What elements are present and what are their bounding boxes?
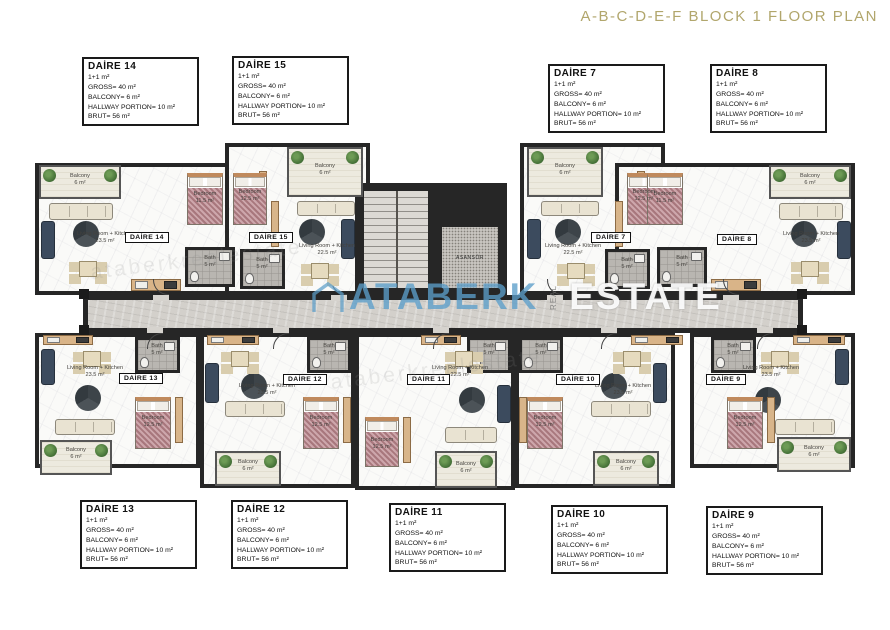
spec-balcony: BALCONY= 6 m² [557, 541, 662, 551]
armchair [653, 363, 667, 403]
info-box-daire-15: DAİRE 15 1+1 m² GROSS= 40 m² BALCONY= 6 … [232, 56, 349, 125]
info-box-title: DAİRE 7 [554, 68, 659, 79]
dining-table [567, 263, 585, 279]
room-label-bath: Bath 5 m² [535, 343, 547, 358]
room-label-bath: Bath 5 m² [204, 255, 216, 270]
wardrobe [403, 417, 411, 463]
spec-hallway: HALLWAY PORTION= 10 m² [395, 549, 500, 559]
wardrobe [767, 397, 775, 443]
spec-hallway: HALLWAY PORTION= 10 m² [716, 110, 821, 120]
spec-type: 1+1 m² [86, 516, 191, 526]
spec-gross: GROSS= 40 m² [712, 532, 817, 542]
room-label-living: Living Room + Kitchen 23.5 m² [783, 231, 839, 246]
sofa [225, 401, 285, 417]
sofa [445, 427, 497, 443]
column [797, 325, 807, 335]
spec-balcony: BALCONY= 6 m² [88, 93, 193, 103]
unit-chip-9: DAİRE 9 [706, 374, 746, 385]
spec-brut: BRUT= 56 m² [554, 119, 659, 129]
armchair [41, 221, 55, 259]
column [797, 289, 807, 299]
info-box-title: DAİRE 13 [86, 504, 191, 515]
spec-brut: BRUT= 56 m² [86, 555, 191, 565]
elevator-label: ASANSÖR [456, 255, 484, 261]
rug [75, 385, 101, 411]
spec-balcony: BALCONY= 6 m² [238, 92, 343, 102]
unit-chip-10: DAİRE 10 [556, 374, 600, 385]
info-box-daire-10: DAİRE 10 1+1 m² GROSS= 40 m² BALCONY= 6 … [551, 505, 668, 574]
spec-brut: BRUT= 56 m² [237, 555, 342, 565]
info-box-title: DAİRE 10 [557, 509, 662, 520]
spec-hallway: HALLWAY PORTION= 10 m² [86, 546, 191, 556]
floor-plan: ASANSÖR Balcony 6 m² Living Room + Kitch… [35, 135, 855, 495]
armchair [527, 219, 541, 259]
room-label-bath: Bath 5 m² [676, 255, 688, 270]
spec-brut: BRUT= 56 m² [712, 561, 817, 571]
elevator: ASANSÖR [438, 223, 502, 292]
room-label-balcony: Balcony 6 m² [456, 461, 476, 476]
room-label-bath: Bath 5 m² [483, 343, 495, 358]
unit-chip-12: DAİRE 12 [283, 374, 327, 385]
room-label-living: Living Room + Kitchen 23.5 m² [239, 383, 295, 398]
room-label-bath: Bath 5 m² [323, 343, 335, 358]
wardrobe [519, 397, 527, 443]
spec-type: 1+1 m² [238, 72, 343, 82]
unit-chip-7: DAİRE 7 [591, 232, 631, 243]
room-label-balcony: Balcony 6 m² [800, 173, 820, 188]
spec-gross: GROSS= 40 m² [395, 529, 500, 539]
armchair [835, 349, 849, 385]
info-box-daire-8: DAİRE 8 1+1 m² GROSS= 40 m² BALCONY= 6 m… [710, 64, 827, 133]
spec-gross: GROSS= 40 m² [716, 90, 821, 100]
info-box-daire-9: DAİRE 9 1+1 m² GROSS= 40 m² BALCONY= 6 m… [706, 506, 823, 575]
spec-hallway: HALLWAY PORTION= 10 m² [554, 110, 659, 120]
door-opening [547, 295, 563, 301]
spec-type: 1+1 m² [554, 80, 659, 90]
kitchen-counter [43, 335, 93, 345]
info-box-daire-11: DAİRE 11 1+1 m² GROSS= 40 m² BALCONY= 6 … [389, 503, 506, 572]
spec-gross: GROSS= 40 m² [88, 83, 193, 93]
room-label-balcony: Balcony 6 m² [66, 447, 86, 462]
info-box-daire-14: DAİRE 14 1+1 m² GROSS= 40 m² BALCONY= 6 … [82, 57, 199, 126]
door-opening [723, 295, 739, 301]
spec-hallway: HALLWAY PORTION= 10 m² [238, 102, 343, 112]
sofa [49, 203, 113, 220]
room-label-bedroom: Bedroom 11.5 m² [194, 191, 217, 206]
spec-brut: BRUT= 56 m² [716, 119, 821, 129]
room-label-bedroom: Bedroom 12.5 m² [734, 415, 757, 430]
armchair [497, 385, 511, 423]
wardrobe [343, 397, 351, 443]
spec-gross: GROSS= 40 m² [238, 82, 343, 92]
page-title: A-B-C-D-E-F BLOCK 1 FLOOR PLAN [580, 8, 878, 25]
stairs [360, 187, 432, 292]
room-label-balcony: Balcony 6 m² [238, 459, 258, 474]
kitchen-counter [793, 335, 845, 345]
sofa [779, 203, 843, 220]
info-box-title: DAİRE 15 [238, 60, 343, 71]
spec-type: 1+1 m² [557, 521, 662, 531]
spec-brut: BRUT= 56 m² [395, 558, 500, 568]
room-label-living: Living Room + Kitchen 23.5 m² [67, 365, 123, 380]
spec-gross: GROSS= 40 m² [554, 90, 659, 100]
kitchen-counter [631, 335, 683, 345]
spec-gross: GROSS= 40 m² [86, 526, 191, 536]
unit-chip-15: DAİRE 15 [249, 232, 293, 243]
unit-chip-11: DAİRE 11 [407, 374, 450, 385]
spec-balcony: BALCONY= 6 m² [716, 100, 821, 110]
dining-table [801, 261, 819, 277]
door-opening [331, 295, 347, 301]
room-label-bedroom: Bedroom 12.5 m² [534, 415, 557, 430]
info-box-title: DAİRE 11 [395, 507, 500, 518]
room-label-bedroom: Bedroom 12.5 m² [142, 415, 165, 430]
armchair [41, 349, 55, 385]
room-label-balcony: Balcony 6 m² [70, 173, 90, 188]
info-box-daire-7: DAİRE 7 1+1 m² GROSS= 40 m² BALCONY= 6 m… [548, 64, 665, 133]
spec-balcony: BALCONY= 6 m² [395, 539, 500, 549]
spec-brut: BRUT= 56 m² [88, 112, 193, 122]
column [79, 325, 89, 335]
dining-table [623, 351, 641, 367]
dining-table [311, 263, 329, 279]
room-label-balcony: Balcony 6 m² [804, 445, 824, 460]
unit-chip-8: DAİRE 8 [717, 234, 757, 245]
spec-hallway: HALLWAY PORTION= 10 m² [557, 551, 662, 561]
spec-type: 1+1 m² [716, 80, 821, 90]
rug [299, 219, 325, 245]
room-label-bedroom: Bedroom 12.5 m² [239, 189, 262, 204]
rug [555, 219, 581, 245]
sofa [297, 201, 355, 216]
spec-balcony: BALCONY= 6 m² [86, 536, 191, 546]
info-box-daire-13: DAİRE 13 1+1 m² GROSS= 40 m² BALCONY= 6 … [80, 500, 197, 569]
room-label-living: Living Room + Kitchen 23.5 m² [595, 383, 651, 398]
armchair [837, 221, 851, 259]
unit-chip-14: DAİRE 14 [125, 232, 169, 243]
spec-type: 1+1 m² [395, 519, 500, 529]
room-label-living: Living Room + Kitchen 23.5 m² [743, 365, 799, 380]
unit-chip-13: DAİRE 13 [119, 373, 163, 384]
room-label-bath: Bath 5 m² [727, 343, 739, 358]
rug [459, 387, 485, 413]
room-label-living: Living Room + Kitchen 22.5 m² [545, 243, 601, 258]
spec-hallway: HALLWAY PORTION= 10 m² [88, 103, 193, 113]
spec-type: 1+1 m² [712, 522, 817, 532]
info-box-title: DAİRE 8 [716, 68, 821, 79]
room-label-bath: Bath 5 m² [151, 343, 163, 358]
dining-table [231, 351, 249, 367]
spec-type: 1+1 m² [88, 73, 193, 83]
kitchen-counter [207, 335, 259, 345]
room-label-bedroom: Bedroom 12.5 m² [310, 415, 333, 430]
room-label-bath: Bath 5 m² [256, 257, 268, 272]
dining-table [79, 261, 97, 277]
info-box-title: DAİRE 9 [712, 510, 817, 521]
spec-balcony: BALCONY= 6 m² [712, 542, 817, 552]
room-label-bedroom: Bedroom 12.5 m² [371, 437, 394, 452]
spec-balcony: BALCONY= 6 m² [237, 536, 342, 546]
spec-brut: BRUT= 56 m² [557, 560, 662, 570]
room-label-bath: Bath 5 m² [621, 257, 633, 272]
sofa [591, 401, 651, 417]
spec-gross: GROSS= 40 m² [237, 526, 342, 536]
wardrobe [175, 397, 183, 443]
room-label-bedroom: Bedroom 12.5 m² [633, 189, 656, 204]
column [79, 289, 89, 299]
spec-gross: GROSS= 40 m² [557, 531, 662, 541]
room-label-living: Living Room + Kitchen 22.5 m² [299, 243, 355, 258]
armchair [205, 363, 219, 403]
spec-hallway: HALLWAY PORTION= 10 m² [237, 546, 342, 556]
room-label-balcony: Balcony 6 m² [315, 163, 335, 178]
room-label-balcony: Balcony 6 m² [555, 163, 575, 178]
info-box-title: DAİRE 12 [237, 504, 342, 515]
door-opening [153, 295, 169, 301]
spec-brut: BRUT= 56 m² [238, 111, 343, 121]
room-label-balcony: Balcony 6 m² [616, 459, 636, 474]
spec-balcony: BALCONY= 6 m² [554, 100, 659, 110]
sofa [541, 201, 599, 216]
info-box-daire-12: DAİRE 12 1+1 m² GROSS= 40 m² BALCONY= 6 … [231, 500, 348, 569]
spec-hallway: HALLWAY PORTION= 10 m² [712, 552, 817, 562]
info-box-title: DAİRE 14 [88, 61, 193, 72]
spec-type: 1+1 m² [237, 516, 342, 526]
sofa [775, 419, 835, 435]
room-label-bedroom: Bedroom 11.5 m² [654, 191, 677, 206]
sofa [55, 419, 115, 435]
